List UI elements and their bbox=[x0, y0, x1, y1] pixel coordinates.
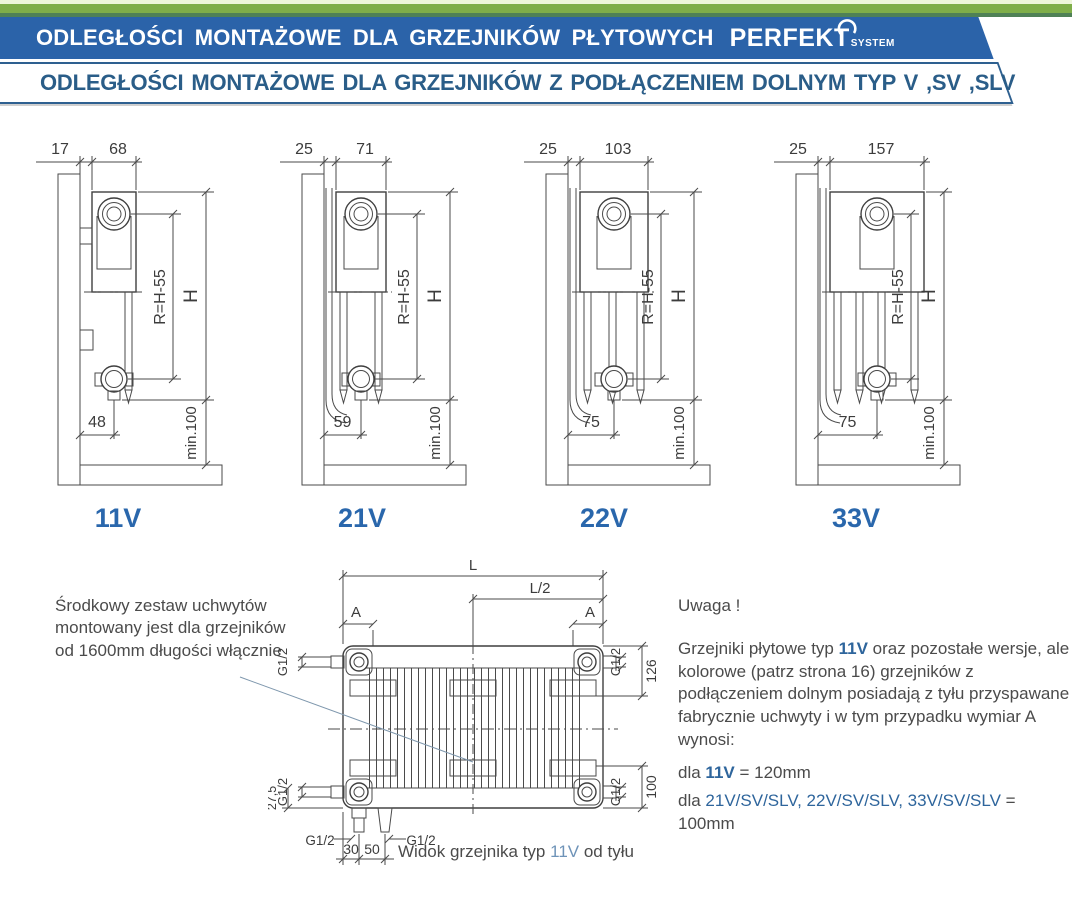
dim-label: 75 bbox=[839, 414, 857, 431]
uwaga-heading: Uwaga ! bbox=[678, 595, 1070, 618]
type-label-33v: 33V bbox=[811, 503, 901, 534]
uwaga-paragraph: Grzejniki płytowe typ 11V oraz pozostałe… bbox=[678, 638, 1070, 752]
rule-text: dla bbox=[678, 791, 705, 810]
dim-label: 59 bbox=[334, 414, 352, 431]
dim-label: L/2 bbox=[530, 580, 551, 597]
page-subtitle: ODLEGŁOŚCI MONTAŻOWE DLA GRZEJNIKÓW Z PO… bbox=[40, 70, 1015, 96]
rule-text: = 120mm bbox=[735, 763, 811, 782]
dim-label: 100 bbox=[643, 775, 659, 799]
side-view-diagram-33v: 25157HR=H-55min.10075 bbox=[756, 132, 1004, 507]
sub-banner: ODLEGŁOŚCI MONTAŻOWE DLA GRZEJNIKÓW Z PO… bbox=[0, 62, 1014, 104]
dim-label: 157 bbox=[868, 141, 895, 158]
dim-label: G1/2 bbox=[305, 833, 334, 848]
dim-label: 25 bbox=[539, 141, 557, 158]
side-view-diagram-11v: 1768HR=H-55min.10048 bbox=[18, 132, 266, 507]
dim-label: 30 bbox=[343, 841, 359, 857]
sub-banner-inner: ODLEGŁOŚCI MONTAŻOWE DLA GRZEJNIKÓW Z PO… bbox=[0, 64, 1004, 102]
rear-view-diagram: L L/2 A A bbox=[268, 556, 668, 886]
caption-post: od tyłu bbox=[579, 842, 634, 861]
dim-label: 50 bbox=[364, 841, 380, 857]
dim-label: R=H-55 bbox=[890, 269, 907, 325]
dim-label: 27,5 bbox=[268, 786, 279, 810]
logo-swoosh-icon bbox=[837, 15, 861, 44]
rule-type-ref: 11V bbox=[705, 763, 734, 782]
dim-label: 25 bbox=[295, 141, 313, 158]
dim-label: R=H-55 bbox=[396, 269, 413, 325]
dim-label: 103 bbox=[605, 141, 632, 158]
dim-label: H bbox=[181, 289, 202, 303]
dim-a-rule-11v: dla 11V = 120mm bbox=[678, 762, 1070, 785]
rule-type-ref: 21V/SV/SLV, 22V/SV/SLV, 33V/SV/SLV bbox=[705, 791, 1001, 810]
uwaga-type-ref: 11V bbox=[839, 639, 868, 658]
rule-text: dla bbox=[678, 763, 705, 782]
page-title: ODLEGŁOŚCI MONTAŻOWE DLA GRZEJNIKÓW PŁYT… bbox=[36, 25, 714, 51]
type-label-22v: 22V bbox=[559, 503, 649, 534]
dim-label: 17 bbox=[51, 141, 69, 158]
dim-label: L bbox=[469, 557, 477, 574]
dim-label: min.100 bbox=[427, 406, 444, 459]
main-banner: ODLEGŁOŚCI MONTAŻOWE DLA GRZEJNIKÓW PŁYT… bbox=[0, 17, 994, 59]
type-label-11v: 11V bbox=[73, 503, 163, 534]
green-accent-strip bbox=[0, 0, 1072, 17]
dim-label: A bbox=[351, 604, 361, 621]
page: ODLEGŁOŚCI MONTAŻOWE DLA GRZEJNIKÓW PŁYT… bbox=[0, 0, 1072, 898]
dim-label: 71 bbox=[356, 141, 374, 158]
uwaga-note: Uwaga ! Grzejniki płytowe typ 11V oraz p… bbox=[678, 595, 1070, 836]
dim-a-rule-others: dla 21V/SV/SLV, 22V/SV/SLV, 33V/SV/SLV =… bbox=[678, 790, 1070, 836]
main-banner-inner: ODLEGŁOŚCI MONTAŻOWE DLA GRZEJNIKÓW PŁYT… bbox=[0, 17, 986, 59]
dim-label: min.100 bbox=[921, 406, 938, 459]
caption-pre: Widok grzejnika typ bbox=[398, 842, 550, 861]
side-view-diagram-21v: 2571HR=H-55min.10059 bbox=[262, 132, 510, 507]
logo-text: PERFEKT bbox=[730, 24, 850, 53]
dim-label: 48 bbox=[88, 414, 106, 431]
dim-label: G1/2 bbox=[608, 778, 623, 806]
dim-label: min.100 bbox=[183, 406, 200, 459]
uwaga-text: Grzejniki płytowe typ bbox=[678, 639, 839, 658]
dim-label: min.100 bbox=[671, 406, 688, 459]
side-view-diagram-22v: 25103HR=H-55min.10075 bbox=[506, 132, 754, 507]
dim-label: R=H-55 bbox=[152, 269, 169, 325]
dim-label: 68 bbox=[109, 141, 127, 158]
dim-label: 126 bbox=[643, 659, 659, 683]
dim-label: H bbox=[425, 289, 446, 303]
dim-label: R=H-55 bbox=[640, 269, 657, 325]
rear-view-caption: Widok grzejnika typ 11V od tyłu bbox=[398, 842, 634, 862]
caption-type: 11V bbox=[550, 842, 579, 861]
dim-label: G1/2 bbox=[608, 648, 623, 676]
type-label-21v: 21V bbox=[317, 503, 407, 534]
dim-label: A bbox=[585, 604, 595, 621]
dim-label: H bbox=[919, 289, 940, 303]
dim-label: G1/2 bbox=[275, 648, 290, 676]
dim-label: 75 bbox=[582, 414, 600, 431]
dim-label: 25 bbox=[789, 141, 807, 158]
perfekt-logo: PERFEKT SYSTEM bbox=[730, 24, 895, 53]
dim-label: H bbox=[669, 289, 690, 303]
